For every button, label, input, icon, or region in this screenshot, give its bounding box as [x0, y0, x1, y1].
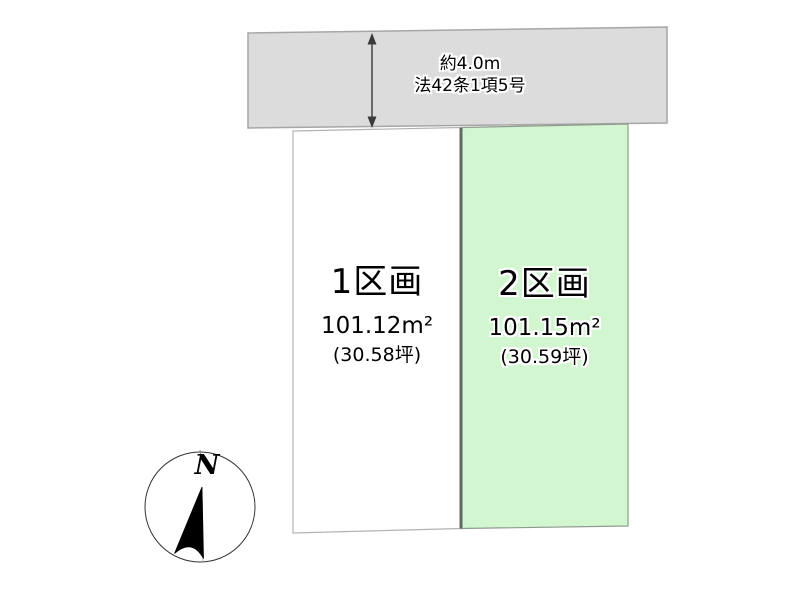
plot-2-area: 101.15m² [488, 312, 600, 344]
plot-1-area: 101.12m² [321, 310, 433, 342]
compass-north-label: N [186, 450, 228, 482]
plot-2-name: 2区画 [498, 264, 591, 304]
compass-needle-icon [175, 487, 204, 559]
road-law-label: 法42条1項5号 [375, 75, 565, 97]
site-plan-diagram: 約4.0m 法42条1項5号 1区画 101.12m² (30.58坪) 2区画… [0, 0, 800, 600]
road-width-label: 約4.0m [375, 53, 565, 75]
plot-1-label: 1区画 101.12m² (30.58坪) [293, 262, 461, 368]
plot-2-tsubo: (30.59坪) [500, 344, 588, 370]
road-label: 約4.0m 法42条1項5号 [375, 53, 565, 97]
plot-2-label: 2区画 101.15m² (30.59坪) [461, 264, 628, 370]
plot-1-name: 1区画 [331, 262, 424, 302]
plot-1-tsubo: (30.58坪) [333, 342, 421, 368]
